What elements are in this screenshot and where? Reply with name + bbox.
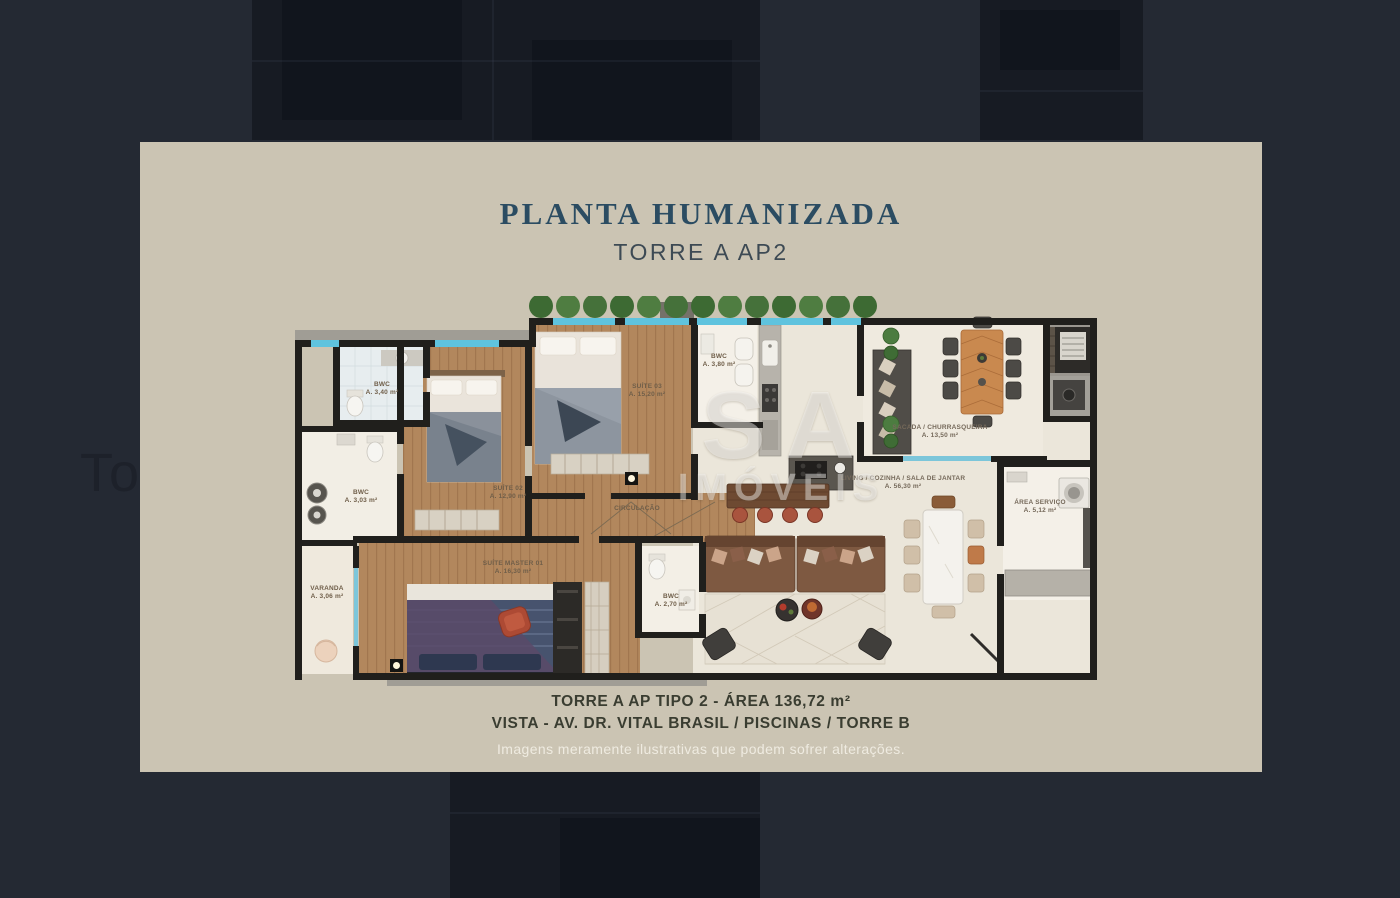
room-suite-master (390, 582, 609, 678)
page-title: PLANTA HUMANIZADA (140, 196, 1262, 232)
disclaimer: Imagens meramente ilustrativas que podem… (140, 741, 1262, 757)
label-circulacao-name: CIRCULAÇÃO (614, 503, 660, 512)
label-varanda-name: VARANDA (310, 585, 344, 592)
label-varanda-area: A. 3,06 m² (311, 593, 344, 600)
page-subtitle: TORRE A AP2 (140, 239, 1262, 266)
label-bwc3-area: A. 3,03 m² (345, 497, 378, 504)
label-bwc4-area: A. 2,70 m² (655, 601, 688, 608)
label-sacada-area: A. 13,50 m² (922, 432, 959, 439)
ghost-detail (492, 0, 494, 140)
label-bwc3-name: BWC (353, 489, 369, 496)
gallery-thumbnail-top-right (980, 0, 1143, 140)
floorplan-image: BWC A. 3,40 m² SUÍTE 03 A. 15,20 m² BWC … (295, 296, 1105, 686)
label-living-name: LIVING / COZINHA / SALA DE JANTAR (841, 475, 966, 482)
label-suite02-name: SUÍTE 02 (493, 483, 523, 492)
ghost-detail (252, 60, 760, 62)
label-bwc2-name: BWC (711, 353, 727, 360)
label-living-area: A. 56,30 m² (885, 483, 922, 490)
label-area-servico-name: ÁREA SERVIÇO (1014, 497, 1066, 506)
trees-row (529, 296, 877, 318)
label-suite-master-name: SUÍTE MASTER 01 (483, 558, 544, 567)
ghost-detail (1000, 10, 1120, 70)
ghost-detail (532, 40, 732, 140)
label-area-servico-area: A. 5,12 m² (1024, 507, 1057, 514)
unit-info: TORRE A AP TIPO 2 - ÁREA 136,72 m² (140, 693, 1262, 711)
label-suite03-name: SUÍTE 03 (632, 381, 662, 390)
background-caption: To (80, 442, 141, 504)
ghost-detail (980, 90, 1143, 92)
label-suite02-area: A. 12,90 m² (490, 493, 527, 500)
floorplan-slide[interactable]: PLANTA HUMANIZADA TORRE A AP2 (140, 142, 1262, 772)
label-bwc1-area: A. 3,40 m² (366, 389, 399, 396)
floorplan-svg: BWC A. 3,40 m² SUÍTE 03 A. 15,20 m² BWC … (295, 296, 1105, 686)
lightbox: To PLANTA HUMANIZADA TORRE A AP2 (0, 0, 1400, 898)
label-bwc1-name: BWC (374, 381, 390, 388)
label-bwc4-name: BWC (663, 593, 679, 600)
view-info: VISTA - AV. DR. VITAL BRASIL / PISCINAS … (140, 715, 1262, 733)
churrasqueira-grill (1047, 327, 1093, 416)
gallery-thumbnail-top-left (252, 0, 760, 140)
ghost-detail (450, 812, 760, 814)
ghost-detail (560, 818, 760, 898)
label-suite03-area: A. 15,20 m² (629, 391, 666, 398)
gallery-thumbnail-bottom (450, 772, 760, 898)
label-bwc2-area: A. 3,80 m² (703, 361, 736, 368)
label-sacada-name: SACADA / CHURRASQUEIRA (892, 424, 987, 431)
label-suite-master-area: A. 16,30 m² (495, 568, 532, 575)
room-varanda (315, 640, 337, 662)
